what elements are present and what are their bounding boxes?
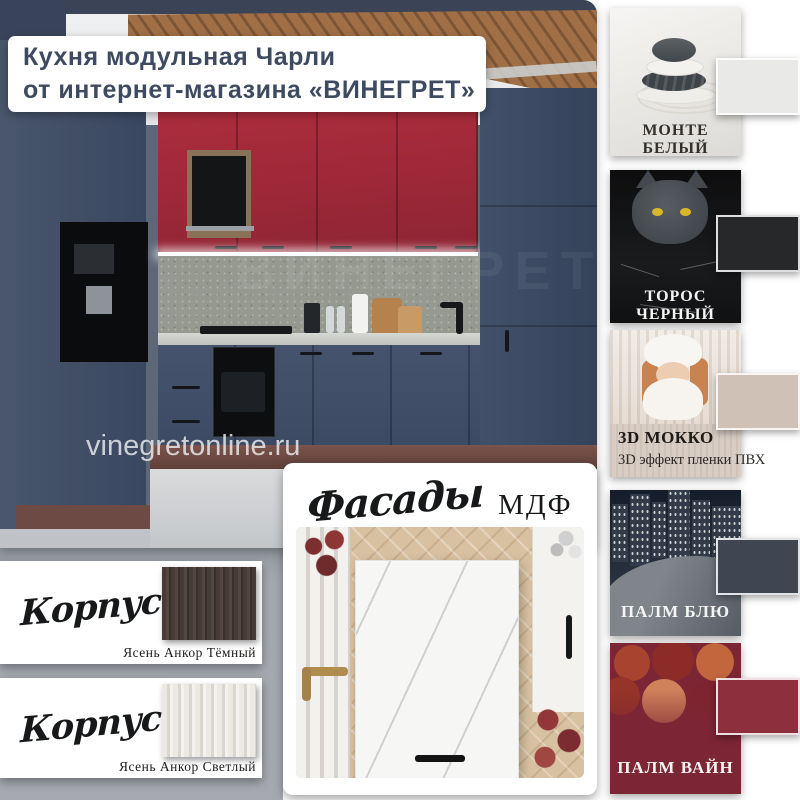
cabinet-handle (215, 246, 237, 249)
coffee-machine-screen (74, 244, 114, 274)
site-watermark: vinegretonline.ru (86, 430, 300, 463)
title-band: Кухня модульная Чарли от интернет-магази… (8, 36, 486, 112)
dried-plant-top-left (298, 527, 350, 591)
dark-wood-swatch (162, 567, 256, 640)
building (652, 502, 666, 558)
color-chip-mokko (716, 373, 800, 430)
carcass-card-light: КорпусЛДСП Ясень Анкор Светлый (0, 678, 262, 778)
building (612, 504, 628, 562)
drawer-handle (172, 420, 200, 423)
dried-plant-bottom-right (524, 695, 584, 778)
dark-pebble (652, 38, 696, 62)
floor-left (0, 529, 150, 548)
marble-facade-panel (355, 560, 519, 778)
cat-head (632, 180, 708, 244)
drawer-handle (300, 352, 322, 355)
cutting-board (398, 306, 422, 333)
carcass-script-word: Корпус (20, 698, 162, 752)
building (630, 494, 650, 566)
drawer-handle (352, 352, 374, 355)
bottle (337, 306, 345, 333)
hood-glass-visor (186, 226, 254, 231)
carcass-card-dark: КорпусЛДСП Ясень Анкор Тёмный (0, 561, 262, 664)
wine-cork (696, 643, 734, 681)
white-scarf (643, 378, 703, 420)
carcass-script-word: Корпус (20, 581, 162, 635)
drawer-handle (420, 352, 442, 355)
oven-door-glass (221, 372, 265, 412)
silver-decor (548, 527, 584, 565)
countertop (158, 333, 480, 345)
left-wall-strip (0, 40, 16, 548)
brass-pipe (302, 667, 311, 701)
swatch-caption: Ясень Анкор Светлый (30, 759, 256, 775)
marble-scratch (621, 264, 659, 277)
facade-card: ФасадыМДФ (283, 463, 597, 795)
finish-sublabel-mokko: 3D эффект пленки ПВХ (618, 452, 765, 469)
cooktop (200, 326, 292, 334)
bottle (326, 306, 334, 333)
finish-label-palm-blue: ПАЛМ БЛЮ (610, 602, 741, 622)
finish-label-monte: МОНТЕ БЕЛЫЙ (610, 122, 741, 158)
cat-eye (680, 208, 691, 216)
cat-eye (652, 208, 663, 216)
left-plinth (16, 505, 150, 529)
facade-card-title: ФасадыМДФ (283, 477, 597, 524)
building (692, 500, 710, 562)
facade-material: МДФ (498, 489, 572, 521)
range-hood (192, 156, 246, 226)
knife-block (304, 303, 320, 333)
color-chip-toros (716, 215, 800, 272)
swatch-caption: Ясень Анкор Тёмный (30, 645, 256, 661)
wine-cork (614, 645, 650, 681)
poster: ВИНЕГРЕТ vinegretonline.ru Кухня модульн… (0, 0, 800, 800)
wine-cork (652, 643, 694, 681)
finish-label-toros: ТОРОС ЧЕРНЫЙ (610, 288, 741, 324)
door-handle (566, 615, 572, 659)
finish-label-palm-wine: ПАЛМ ВАЙН (610, 758, 741, 778)
color-chip-palm-blue (716, 538, 800, 595)
drawer-handle (172, 386, 200, 389)
title-line-2: от интернет-магазина «ВИНЕГРЕТ» (23, 74, 486, 107)
color-chip-palm-wine (716, 678, 800, 735)
tall-cabinet-handle (505, 330, 509, 352)
title-line-1: Кухня модульная Чарли (23, 41, 486, 74)
facade-handle (415, 755, 465, 762)
coffee-machine-spout (86, 286, 112, 314)
faucet-spout (440, 302, 462, 308)
color-chip-monte (716, 58, 800, 115)
finish-label-mokko: 3D МОККО (618, 428, 714, 448)
light-wood-swatch (162, 684, 256, 757)
ghost-watermark: ВИНЕГРЕТ (235, 240, 597, 302)
facade-script-word: Фасады (307, 469, 484, 532)
facade-photo (296, 527, 584, 778)
